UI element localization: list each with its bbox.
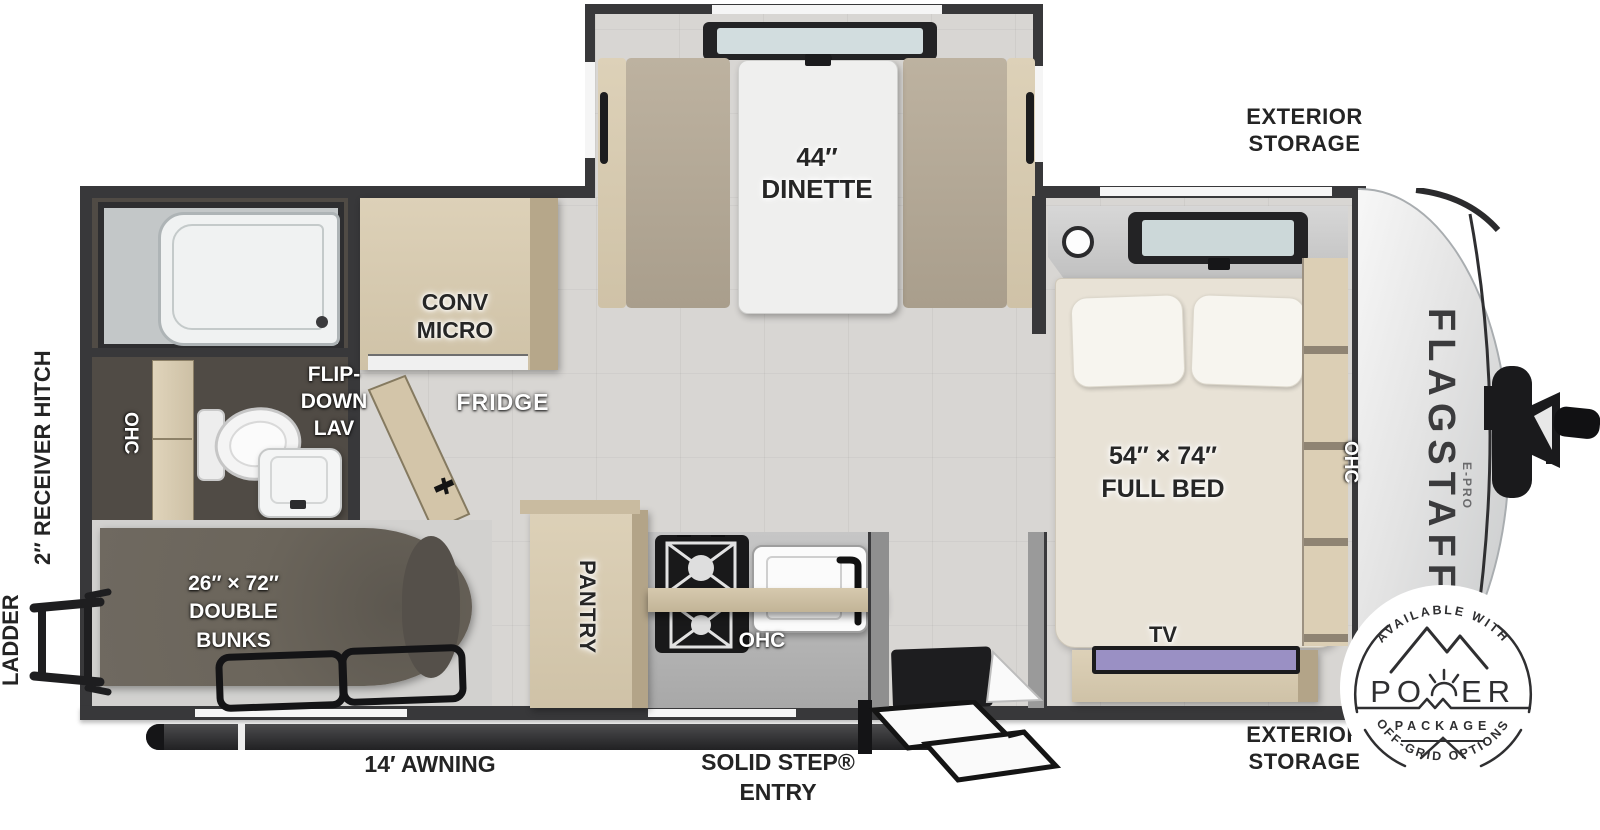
pantry-label: PANTRY bbox=[572, 534, 600, 680]
dinette-bench-right-cushion bbox=[903, 58, 1007, 308]
ohc-bathroom-label: OHC bbox=[118, 396, 142, 470]
bedroom-divider-wall bbox=[1032, 196, 1046, 334]
lav-faucet-icon bbox=[290, 500, 306, 509]
pillow-right bbox=[1190, 294, 1305, 388]
receiver-hitch-label: 2″ RECEIVER HITCH bbox=[30, 310, 60, 605]
conv-micro-cabinet-side bbox=[530, 198, 558, 370]
pantry-cabinet-side bbox=[632, 510, 648, 708]
dinette-label-line2: DINETTE bbox=[742, 174, 892, 206]
dinette-label-line1: 44″ bbox=[742, 142, 892, 174]
shower-pan-inner bbox=[172, 224, 324, 330]
entry-label-line1: SOLID STEP® bbox=[668, 748, 888, 778]
awning-roller bbox=[146, 724, 948, 750]
bathroom-divider-wall bbox=[92, 348, 348, 357]
bench-right-handle bbox=[1026, 92, 1034, 164]
pillow-left bbox=[1070, 294, 1185, 388]
flip-down-lav-label: FLIP- DOWN LAV bbox=[268, 362, 400, 443]
galley-side-window bbox=[648, 709, 796, 717]
conv-micro-line2: MICRO bbox=[372, 316, 538, 344]
tv-label: TV bbox=[1128, 622, 1198, 649]
badge-package-text: PACKAGE bbox=[1395, 719, 1492, 733]
bunks-label-line2: DOUBLE bbox=[146, 598, 321, 626]
lav-label-line1: FLIP- bbox=[268, 362, 400, 389]
bed-skylight-glass bbox=[1142, 220, 1294, 256]
tv-cabinet-side bbox=[1298, 650, 1318, 702]
lav-label-line3: LAV bbox=[268, 416, 400, 443]
bunk-window-frame-2 bbox=[339, 644, 467, 706]
bunks-label-line1: 26″ × 72″ bbox=[146, 570, 321, 598]
kitchen-ohc-strip bbox=[648, 588, 886, 612]
bunks-label-line3: BUNKS bbox=[146, 627, 321, 655]
awning-label: 14′ AWNING bbox=[330, 750, 530, 778]
bed-skylight-latch bbox=[1208, 258, 1230, 270]
bench-left-handle bbox=[600, 92, 608, 164]
brand-sub-logo: E-PRO bbox=[1458, 436, 1474, 536]
ladder-label: LADDER bbox=[0, 576, 24, 704]
badge-power-left: PO bbox=[1370, 674, 1427, 709]
bed-label-line2: FULL BED bbox=[1068, 473, 1258, 506]
bunks-label: 26″ × 72″ DOUBLE BUNKS bbox=[146, 570, 321, 655]
entry-label: SOLID STEP® ENTRY bbox=[668, 748, 888, 808]
dinette-label: 44″ DINETTE bbox=[742, 142, 892, 205]
power-package-badge: AVAILABLE WITH PO ER PACKAGE OFF-GRID OP… bbox=[1339, 584, 1547, 792]
hitch-coupler-icon bbox=[1476, 358, 1600, 510]
awning-roller-joint bbox=[238, 724, 245, 750]
full-bed-label: 54″ × 74″ FULL BED bbox=[1068, 440, 1258, 505]
conv-micro-label: CONV MICRO bbox=[372, 288, 538, 344]
rear-ladder-icon bbox=[26, 580, 112, 700]
exterior-storage-top-line1: EXTERIOR bbox=[1192, 104, 1417, 131]
lav-label-line2: DOWN bbox=[268, 389, 400, 416]
flip-down-lav-basin bbox=[270, 456, 328, 504]
entry-label-line2: ENTRY bbox=[668, 778, 888, 808]
entry-partition-left bbox=[868, 532, 889, 708]
awning-roller-endcap bbox=[146, 724, 164, 750]
pantry-top-ledge bbox=[520, 500, 640, 514]
badge-power-right: ER bbox=[1461, 674, 1516, 709]
conv-micro-cabinet bbox=[360, 198, 558, 370]
bathroom-ohc-divider bbox=[152, 438, 192, 440]
floorplan-canvas: EXTERIOR STORAGE EXTERIOR STORAGE 2″ REC… bbox=[0, 0, 1600, 830]
exterior-storage-top-label: EXTERIOR STORAGE bbox=[1192, 104, 1417, 158]
headboard-knob-icon bbox=[1062, 226, 1094, 258]
bathroom-ohc-cabinet bbox=[152, 360, 194, 522]
exterior-storage-top-line2: STORAGE bbox=[1192, 131, 1417, 158]
conv-micro-line1: CONV bbox=[372, 288, 538, 316]
tv-screen bbox=[1092, 646, 1300, 674]
bed-window bbox=[1100, 187, 1332, 196]
bunk-window-frame-1 bbox=[215, 650, 347, 713]
brand-logo: FLAGSTAFF bbox=[1420, 266, 1462, 636]
bed-label-line1: 54″ × 74″ bbox=[1068, 440, 1258, 473]
solid-step-entry-icon bbox=[858, 700, 1063, 812]
ohc-kitchen-label: OHC bbox=[722, 628, 802, 654]
dinette-table-mount bbox=[805, 54, 831, 66]
ohc-bed-label: OHC bbox=[1336, 420, 1362, 504]
shower-head-icon bbox=[316, 316, 328, 328]
dinette-bench-left-cushion bbox=[626, 58, 730, 308]
fridge-label: FRIDGE bbox=[428, 388, 578, 416]
dinette-skylight-glass bbox=[717, 28, 923, 54]
dinette-left-window bbox=[585, 62, 595, 158]
dinette-top-window bbox=[712, 5, 942, 14]
wall-top-left bbox=[80, 186, 585, 198]
